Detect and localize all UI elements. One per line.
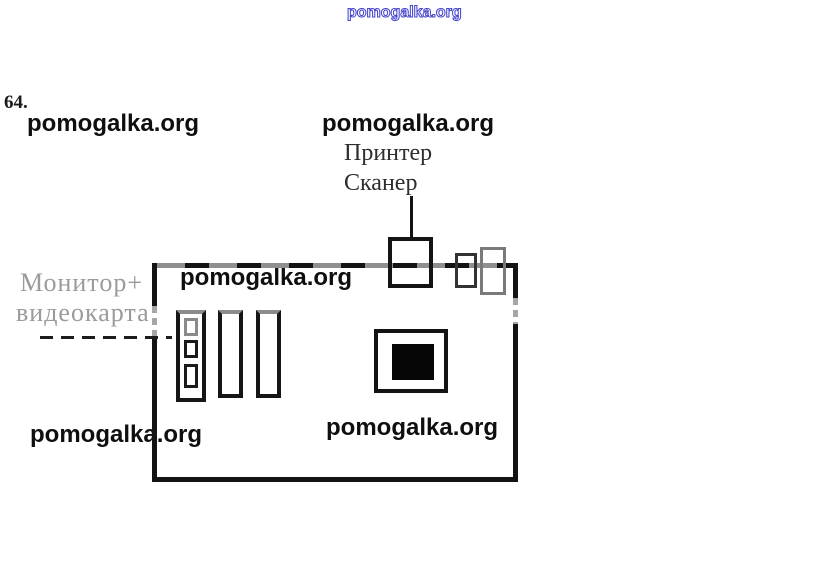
monitor-leader-dashed-line	[40, 336, 172, 339]
slot-1-segment-middle	[184, 340, 198, 358]
label-scanner: Сканер	[344, 170, 417, 197]
cpu-socket	[374, 329, 448, 393]
label-printer: Принтер	[344, 140, 432, 167]
motherboard-outline: pomogalka.org pomogalka.org	[152, 263, 518, 482]
expansion-slot-3	[256, 310, 281, 398]
watermark-upper-center: pomogalka.org	[322, 110, 494, 138]
printer-scanner-port	[388, 237, 433, 288]
cpu-die	[392, 344, 434, 380]
watermark-top-blue: pomogalka.org	[347, 4, 462, 22]
scanner-connector-line	[410, 196, 413, 240]
watermark-board-bottom: pomogalka.org	[326, 414, 498, 442]
label-videocard: видеокарта	[16, 298, 150, 328]
scanned-page: pomogalka.org 64. pomogalka.org pomogalk…	[0, 0, 815, 577]
board-right-edge-fade	[513, 298, 518, 324]
slot-1-segment-bottom	[184, 364, 198, 388]
expansion-slot-1	[176, 310, 206, 402]
rear-port-small	[455, 253, 477, 288]
exercise-number: 64.	[4, 92, 28, 114]
watermark-board-top: pomogalka.org	[180, 264, 352, 292]
expansion-slot-2	[218, 310, 243, 398]
slot-1-segment-top	[184, 318, 198, 336]
label-monitor: Монитор+	[20, 268, 143, 298]
board-left-edge-fade	[152, 306, 157, 338]
watermark-upper-left: pomogalka.org	[27, 110, 199, 138]
rear-port-large	[480, 247, 506, 295]
